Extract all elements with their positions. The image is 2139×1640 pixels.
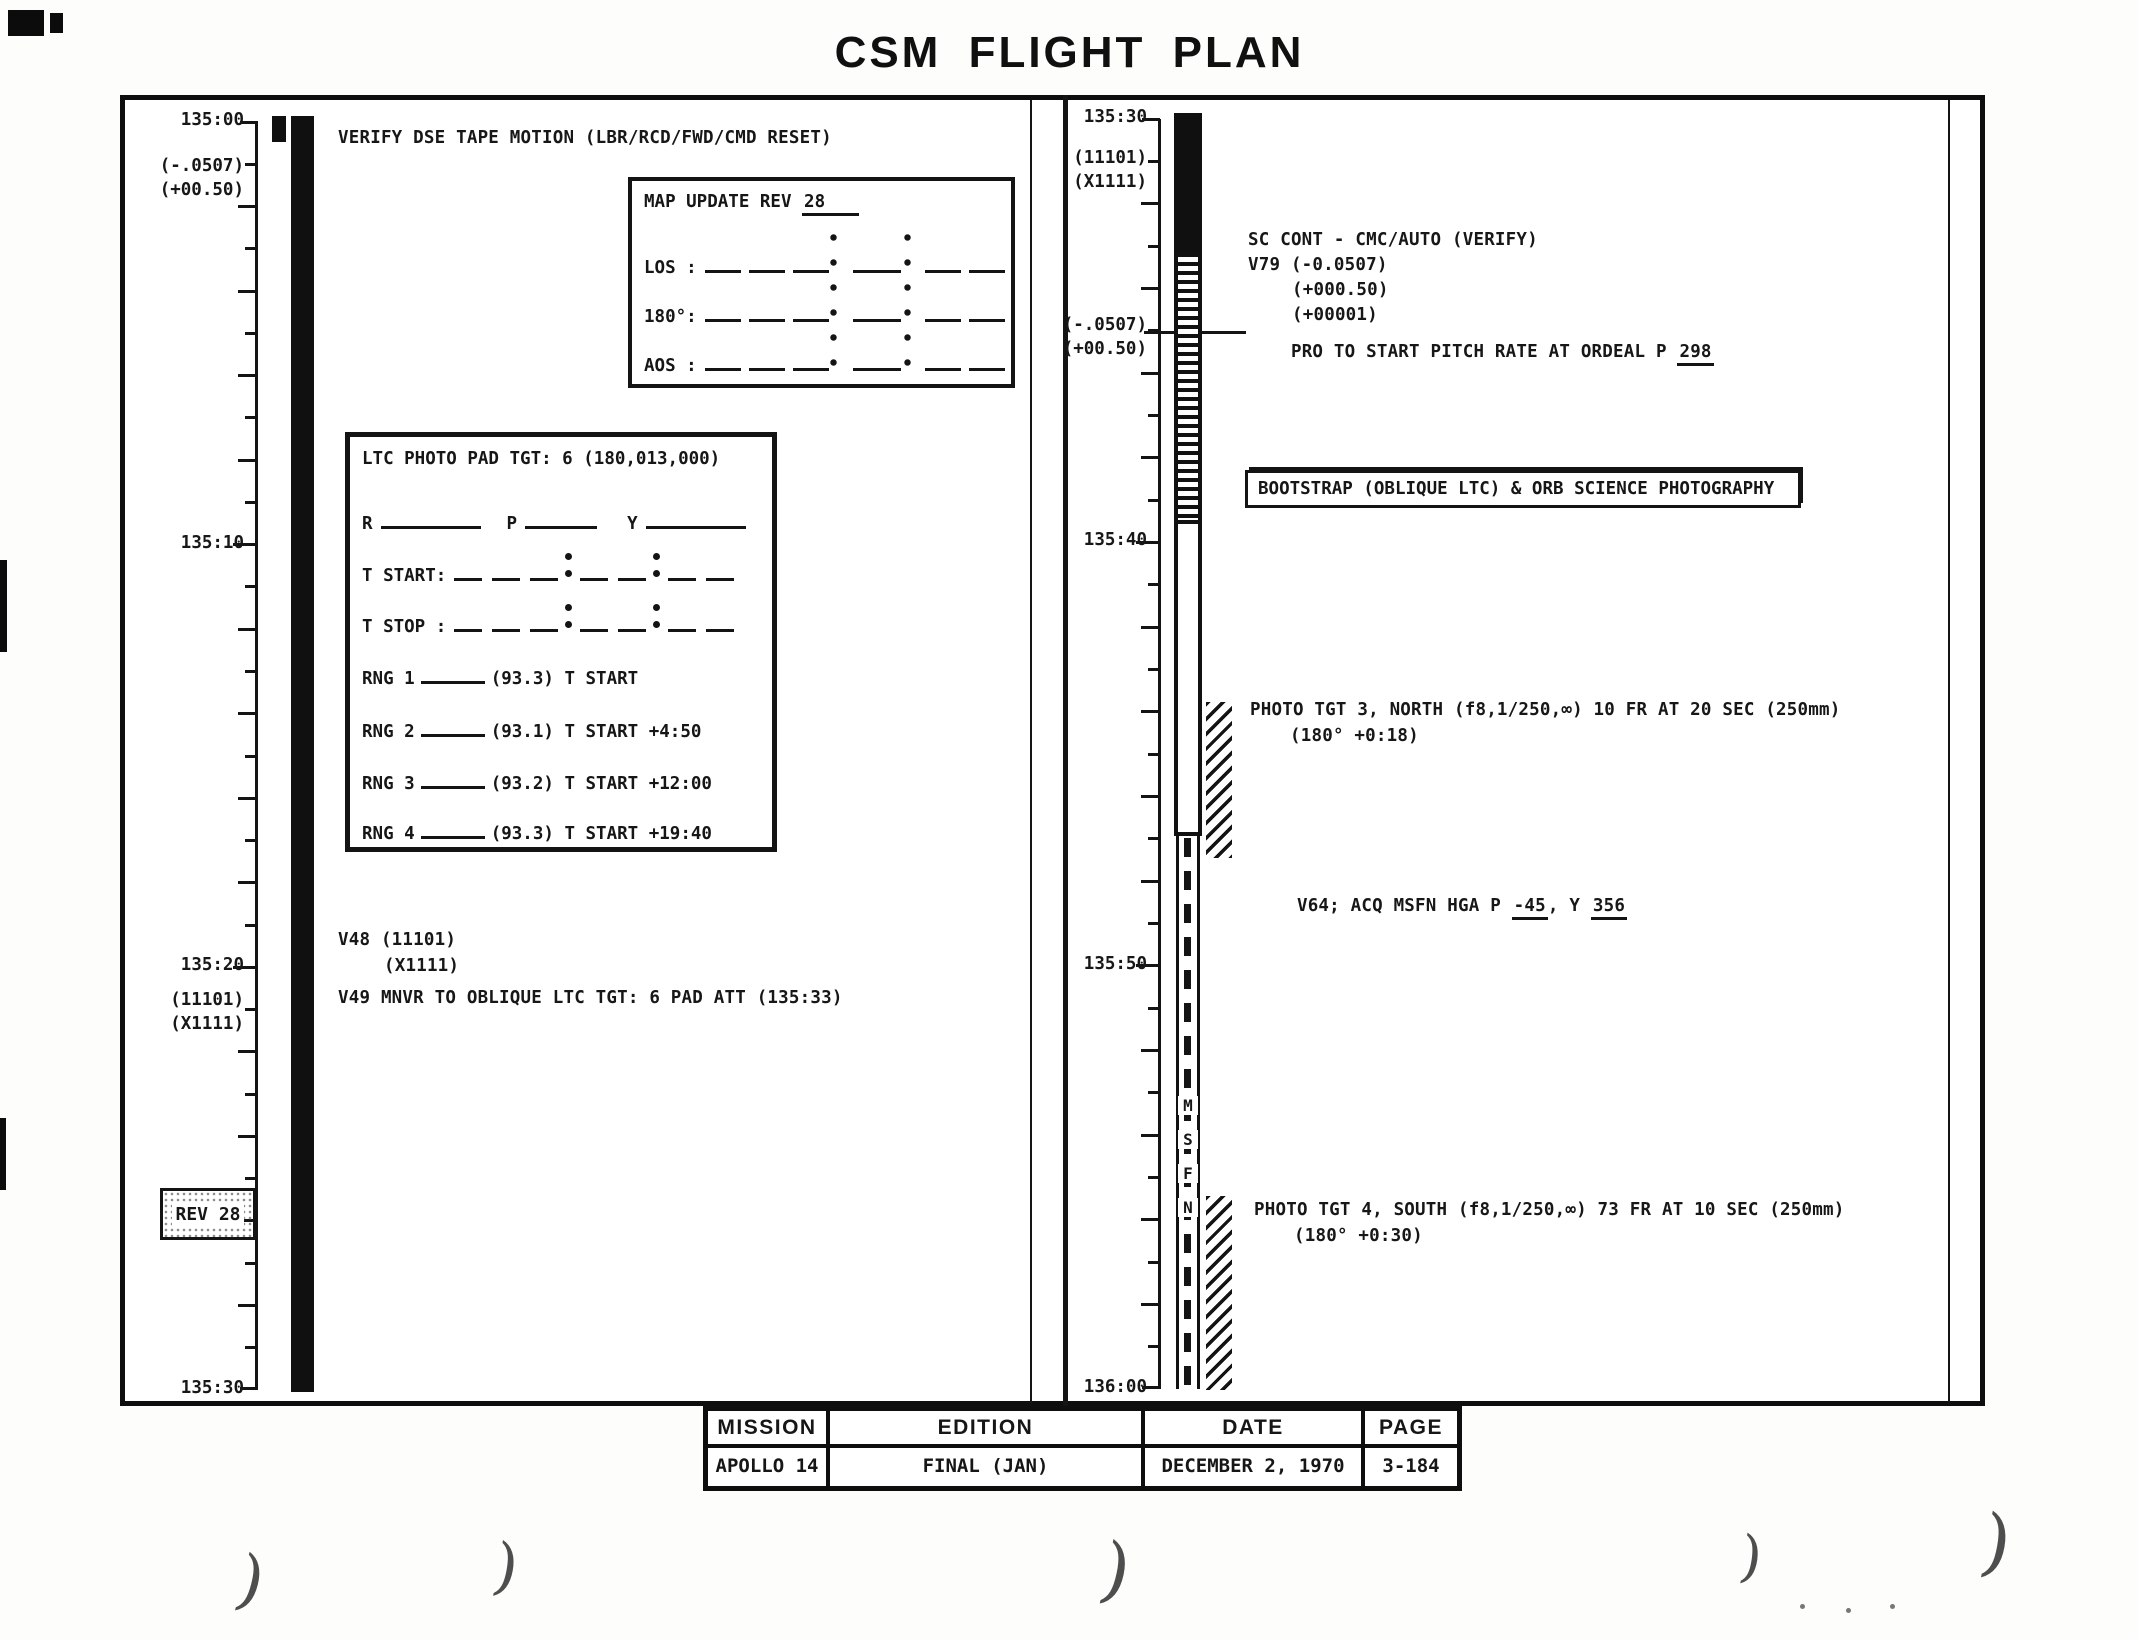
- timeline-tick: [238, 374, 258, 377]
- timeline-label: 135:30: [94, 1378, 244, 1398]
- map-180-row: 180°:: [644, 304, 1005, 327]
- rng-note: (93.2) T START +12:00: [491, 774, 712, 794]
- timeline-tick: [1148, 837, 1161, 840]
- msfn-letter: N: [1178, 1198, 1198, 1217]
- rng-label: RNG 2: [362, 722, 415, 742]
- rng-row-3: RNG 3(93.2) T START +12:00: [362, 771, 712, 794]
- timeline-tick: [1141, 710, 1161, 713]
- left-activity-bar: [291, 116, 314, 1392]
- timeline-tick: [1141, 372, 1161, 375]
- footer-table: MISSION EDITION DATE PAGE APOLLO 14 FINA…: [703, 1406, 1462, 1491]
- photo-tgt4-hatch-bar: [1206, 1196, 1232, 1390]
- footer-header-date: DATE: [1145, 1411, 1365, 1448]
- msfn-letter: F: [1178, 1164, 1198, 1183]
- map-aos-label: AOS :: [644, 356, 697, 376]
- footer-header-mission: MISSION: [708, 1411, 830, 1448]
- timeline-tick: [1148, 1345, 1161, 1348]
- timeline-tick: [1141, 795, 1161, 798]
- timeline-label: 135:00: [94, 110, 244, 130]
- timeline-tick: [245, 1177, 258, 1180]
- timeline-tick: [238, 1135, 258, 1138]
- v64-line: V64; ACQ MSFN HGA P -45, Y 356: [1254, 876, 1627, 936]
- v64-text2: , Y: [1548, 896, 1591, 916]
- timeline-tick: [238, 459, 258, 462]
- colon-dot-column: [830, 225, 837, 375]
- page-title: CSM FLIGHT PLAN: [0, 28, 2139, 78]
- bootstrap-activity-box: BOOTSTRAP (OBLIQUE LTC) & ORB SCIENCE PH…: [1245, 470, 1801, 508]
- timeline-tick: [238, 797, 258, 800]
- timeline-tick: [238, 881, 258, 884]
- photo-tgt4-line2: (180° +0:30): [1294, 1226, 1423, 1246]
- timeline-tick: [1148, 160, 1161, 163]
- ltc-rpy-row: RPY: [362, 511, 746, 534]
- msfn-letter: M: [1178, 1096, 1198, 1115]
- timeline-label: 136:00: [997, 1377, 1147, 1397]
- timeline-label: (X1111): [94, 1014, 244, 1034]
- map-aos-row: AOS :: [644, 353, 1005, 376]
- timeline-tick: [245, 332, 258, 335]
- v79-line2: (+000.50): [1292, 280, 1389, 300]
- timeline-tick: [238, 205, 258, 208]
- timeline-tick: [1141, 1303, 1161, 1306]
- rng-row-2: RNG 2(93.1) T START +4:50: [362, 719, 701, 742]
- ordeal-pitch-value: 298: [1677, 342, 1713, 366]
- v48-line2: (X1111): [384, 956, 459, 976]
- right-bar-solid: [1174, 113, 1202, 253]
- timeline-tick: [1148, 1176, 1161, 1179]
- scan-paren: ): [1976, 1504, 2017, 1582]
- ltc-photo-pad: LTC PHOTO PAD TGT: 6 (180,013,000) RPY T…: [345, 432, 777, 852]
- rev-28-flag: REV 28: [160, 1188, 256, 1240]
- scan-mark: [50, 13, 63, 33]
- scan-mark: [0, 1118, 6, 1190]
- timeline-tick: [1148, 414, 1161, 417]
- timeline-tick: [1141, 456, 1161, 459]
- timeline-tick: [1148, 329, 1161, 332]
- timeline-tick: [1141, 880, 1161, 883]
- timeline-label: (-.0507): [997, 315, 1147, 335]
- rng-label: RNG 3: [362, 774, 415, 794]
- timeline-tick: [1148, 668, 1161, 671]
- footer-value-page: 3-184: [1365, 1448, 1457, 1486]
- timeline-tick: [245, 416, 258, 419]
- rev-28-label: REV 28: [172, 1203, 243, 1226]
- v79-line: V79 (-0.0507): [1248, 255, 1388, 275]
- footer-value-mission: APOLLO 14: [708, 1448, 830, 1486]
- left-margin-line: [1030, 100, 1032, 1404]
- timeline-tick: [1148, 245, 1161, 248]
- timeline-tick: [1148, 1091, 1161, 1094]
- map-los-label: LOS :: [644, 258, 697, 278]
- timeline-tick: [245, 924, 258, 927]
- scan-paren: ): [489, 1534, 524, 1599]
- timeline-tick: [245, 839, 258, 842]
- timeline-label: (+00.50): [94, 180, 244, 200]
- timeline-tick: [238, 1304, 258, 1307]
- bootstrap-label: BOOTSTRAP (OBLIQUE LTC) & ORB SCIENCE PH…: [1258, 479, 1774, 499]
- rng-label: RNG 4: [362, 824, 415, 844]
- timeline-label: 135:40: [997, 530, 1147, 550]
- timeline-label: (X1111): [997, 172, 1147, 192]
- timeline-tick: [1141, 626, 1161, 629]
- timeline-tick: [245, 1008, 258, 1011]
- v64-text: V64; ACQ MSFN HGA P: [1297, 896, 1512, 916]
- map-update-pad: MAP UPDATE REV 28 LOS : 180°: AOS :: [628, 177, 1015, 388]
- timeline-label: 135:10: [94, 533, 244, 553]
- timeline-tick: [1148, 753, 1161, 756]
- timeline-tick: [238, 628, 258, 631]
- scan-dot: [1846, 1608, 1851, 1613]
- scan-paren: ): [230, 1546, 271, 1616]
- right-bar-hollow: [1174, 520, 1202, 836]
- map-los-row: LOS :: [644, 255, 1005, 278]
- timeline-tick: [245, 1346, 258, 1349]
- timeline-tick: [245, 1262, 258, 1265]
- footer-header-page: PAGE: [1365, 1411, 1457, 1448]
- timeline-tick: [245, 247, 258, 250]
- photo-tgt3-line2: (180° +0:18): [1290, 726, 1419, 746]
- timeline-tick: [1148, 499, 1161, 502]
- timeline-tick: [1141, 287, 1161, 290]
- timeline-label: (-.0507): [94, 156, 244, 176]
- timeline-tick: [1148, 583, 1161, 586]
- scan-mark: [8, 10, 44, 36]
- map-180-label: 180°:: [644, 307, 697, 327]
- msfn-letter: S: [1178, 1130, 1198, 1149]
- timeline-tick: [1148, 1261, 1161, 1264]
- yaw-label: Y: [627, 514, 638, 534]
- timeline-tick: [245, 163, 258, 166]
- timeline-tick: [1141, 202, 1161, 205]
- t-stop-label: T STOP :: [362, 617, 446, 637]
- photo-tgt3-line: PHOTO TGT 3, NORTH (f8,1/250,∞) 10 FR AT…: [1250, 700, 1840, 720]
- hga-pitch-value: -45: [1512, 896, 1548, 920]
- pitch-label: P: [507, 514, 518, 534]
- pro-ordeal-text: PRO TO START PITCH RATE AT ORDEAL P: [1291, 342, 1678, 362]
- rng-label: RNG 1: [362, 669, 415, 689]
- ltc-tstart-row: T START:: [362, 563, 734, 586]
- timeline-tick: [238, 1050, 258, 1053]
- right-bar-maneuver: [1174, 253, 1202, 520]
- colon-dot-column: [904, 225, 911, 375]
- ltc-pad-title: LTC PHOTO PAD TGT: 6 (180,013,000): [362, 449, 720, 469]
- timeline-label: (11101): [94, 990, 244, 1010]
- pro-ordeal-line: PRO TO START PITCH RATE AT ORDEAL P 298: [1248, 322, 1714, 382]
- timeline-tick: [245, 670, 258, 673]
- timeline-tick: [1148, 1007, 1161, 1010]
- verify-dse-note: VERIFY DSE TAPE MOTION (LBR/RCD/FWD/CMD …: [338, 128, 832, 148]
- timeline-tick: [245, 1093, 258, 1096]
- map-update-rev-value: 28: [802, 192, 859, 216]
- timeline-label: 135:20: [94, 955, 244, 975]
- timeline-tick: [238, 290, 258, 293]
- footer-value-edition: FINAL (JAN): [830, 1448, 1145, 1486]
- rng-row-4: RNG 4(93.3) T START +19:40: [362, 821, 712, 844]
- scan-mark: [0, 560, 7, 652]
- map-update-title: MAP UPDATE REV 28: [644, 192, 859, 212]
- timeline-label: (+00.50): [997, 339, 1147, 359]
- roll-label: R: [362, 514, 373, 534]
- timeline-tick: [245, 501, 258, 504]
- rng-row-1: RNG 1(93.3) T START: [362, 666, 638, 689]
- timeline-tick: [1141, 1049, 1161, 1052]
- map-update-title-text: MAP UPDATE REV: [644, 192, 802, 212]
- center-divider: [1063, 95, 1068, 1406]
- timeline-tick: [245, 585, 258, 588]
- timeline-label: (11101): [997, 148, 1147, 168]
- rng-note: (93.3) T START +19:40: [491, 824, 712, 844]
- sc-cont-line: SC CONT - CMC/AUTO (VERIFY): [1248, 230, 1538, 250]
- scan-paren: ): [1095, 1532, 1137, 1608]
- scan-dot: [1800, 1604, 1805, 1609]
- timeline-tick: [1148, 922, 1161, 925]
- timeline-tick: [245, 755, 258, 758]
- rng-note: (93.1) T START +4:50: [491, 722, 702, 742]
- right-margin-line: [1948, 100, 1950, 1404]
- timeline-label: 135:50: [997, 954, 1147, 974]
- ltc-tstop-row: T STOP :: [362, 614, 734, 637]
- photo-tgt3-hatch-bar: [1206, 702, 1232, 858]
- scan-dot: [1890, 1604, 1895, 1609]
- hga-yaw-value: 356: [1591, 896, 1627, 920]
- v49-line: V49 MNVR TO OBLIQUE LTC TGT: 6 PAD ATT (…: [338, 988, 843, 1008]
- flight-plan-page: CSM FLIGHT PLAN 135:00(-.0507)(+00.50)13…: [0, 0, 2139, 1640]
- timeline-label: 135:30: [997, 107, 1147, 127]
- photo-tgt4-line: PHOTO TGT 4, SOUTH (f8,1/250,∞) 73 FR AT…: [1254, 1200, 1844, 1220]
- timeline-tick: [238, 712, 258, 715]
- rng-note: (93.3) T START: [491, 669, 639, 689]
- v48-line: V48 (11101): [338, 930, 456, 950]
- footer-value-date: DECEMBER 2, 1970: [1145, 1448, 1365, 1486]
- footer-header-edition: EDITION: [830, 1411, 1145, 1448]
- left-bar-start-mark: [272, 116, 286, 142]
- timeline-tick: [1141, 1218, 1161, 1221]
- scan-paren: ): [1736, 1529, 1765, 1587]
- t-start-label: T START:: [362, 566, 446, 586]
- timeline-tick: [1141, 1134, 1161, 1137]
